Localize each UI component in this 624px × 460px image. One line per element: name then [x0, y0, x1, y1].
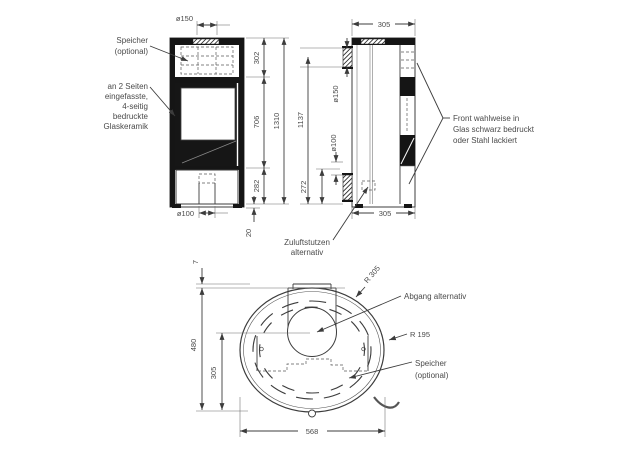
- label-top-speicher-line1: Speicher: [415, 359, 447, 368]
- side-foot-right: [404, 204, 412, 208]
- dim-glass-height: 706: [252, 116, 261, 129]
- dim-gap: 7: [191, 260, 200, 264]
- dim-radius-inner: R 195: [410, 330, 430, 339]
- fire-window: [181, 88, 235, 140]
- label-glass-line3: 4-seitig: [122, 102, 148, 111]
- label-front-finish-line1: Front wahlweise in: [453, 114, 519, 123]
- side-view: [342, 38, 415, 208]
- dim-inlet-diameter: ø100: [177, 209, 194, 218]
- front-base: [176, 170, 238, 204]
- label-glass-line1: an 2 Seiten: [108, 82, 148, 91]
- front-foot-right: [233, 204, 242, 208]
- label-front-finish-line3: oder Stahl lackiert: [453, 136, 518, 145]
- dim-depth-top: 305: [378, 20, 391, 29]
- label-speicher-line2: (optional): [115, 47, 149, 56]
- dim-side-flue-diameter: ø150: [331, 85, 340, 102]
- dim-radius-outer: R 305: [362, 264, 382, 285]
- dim-upper-height: 302: [252, 52, 261, 65]
- label-abgang: Abgang alternativ: [404, 292, 466, 301]
- dim-depth-bottom: 305: [379, 209, 392, 218]
- bottom-knob: [309, 410, 316, 417]
- front-right-panel: [239, 38, 244, 207]
- label-top-speicher-line2: (optional): [415, 371, 449, 380]
- dim-center-depth: 305: [209, 367, 218, 380]
- top-view: [240, 284, 399, 417]
- flue-stub: [343, 48, 352, 67]
- dim-feet-height: 20: [244, 229, 253, 237]
- drawing-canvas: ø150 302 706 282 1310 20 ø100 Speicher (…: [0, 0, 624, 460]
- front-foot-left: [172, 204, 181, 208]
- label-glass-line4: bedruckte: [113, 112, 149, 121]
- handle: [374, 397, 399, 408]
- label-glass-line2: eingefasste,: [105, 92, 148, 101]
- dim-depth: 480: [189, 339, 198, 352]
- dim-total-height: 1310: [272, 113, 281, 130]
- label-front-finish-line2: Glas schwarz bedruckt: [453, 125, 535, 134]
- flue-opening: [288, 308, 337, 357]
- flue-hatch: [193, 39, 219, 44]
- dim-width: 568: [306, 427, 319, 436]
- label-glass-line5: Glaskeramik: [104, 122, 149, 131]
- dim-inlet-height: 272: [299, 181, 308, 194]
- technical-drawing: ø150 302 706 282 1310 20 ø100 Speicher (…: [0, 0, 624, 460]
- air-inlet-stub: [343, 175, 352, 200]
- dim-flue-diameter: ø150: [176, 14, 193, 23]
- label-zuluft-line2: alternativ: [291, 248, 323, 257]
- label-speicher-line1: Speicher: [116, 36, 148, 45]
- front-left-panel: [170, 38, 175, 207]
- label-zuluft-line1: Zuluftstutzen: [284, 238, 330, 247]
- front-view: [170, 38, 244, 208]
- dim-base-height: 282: [252, 180, 261, 193]
- dim-side-inlet-diameter: ø100: [329, 134, 338, 151]
- dim-height-to-flue: 1137: [296, 112, 305, 128]
